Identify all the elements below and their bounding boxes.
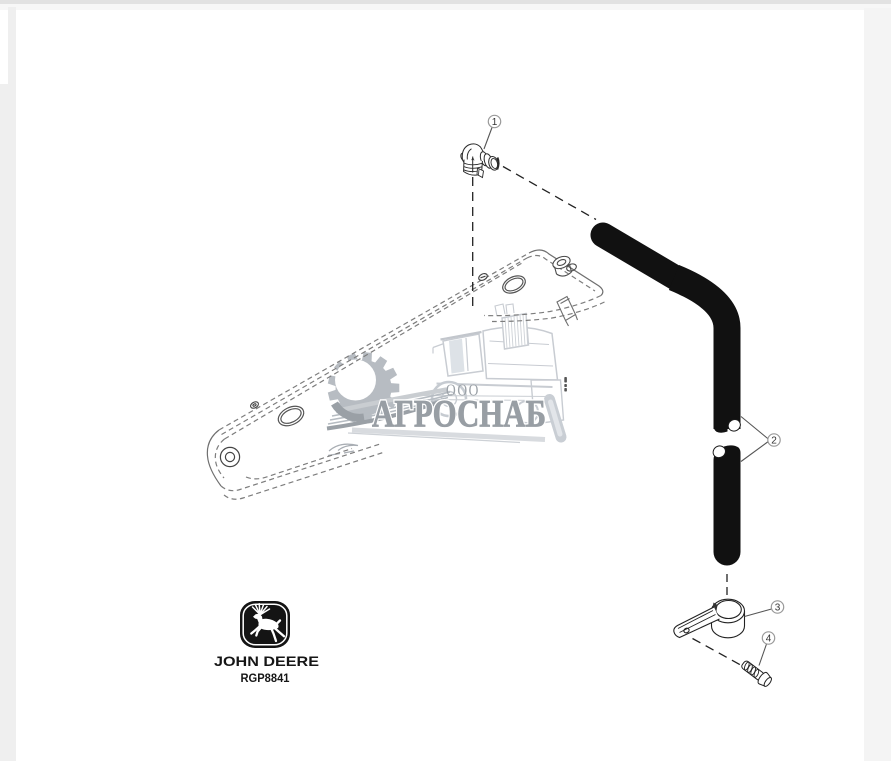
svg-text:1: 1 bbox=[492, 117, 498, 128]
svg-text:RGP8841: RGP8841 bbox=[241, 671, 290, 685]
svg-text:АГРОСНАБ: АГРОСНАБ bbox=[372, 393, 546, 436]
svg-text:2: 2 bbox=[771, 436, 777, 447]
svg-text:JOHN DEERE: JOHN DEERE bbox=[214, 653, 319, 669]
svg-text:4: 4 bbox=[766, 634, 772, 645]
svg-text:3: 3 bbox=[775, 603, 781, 614]
